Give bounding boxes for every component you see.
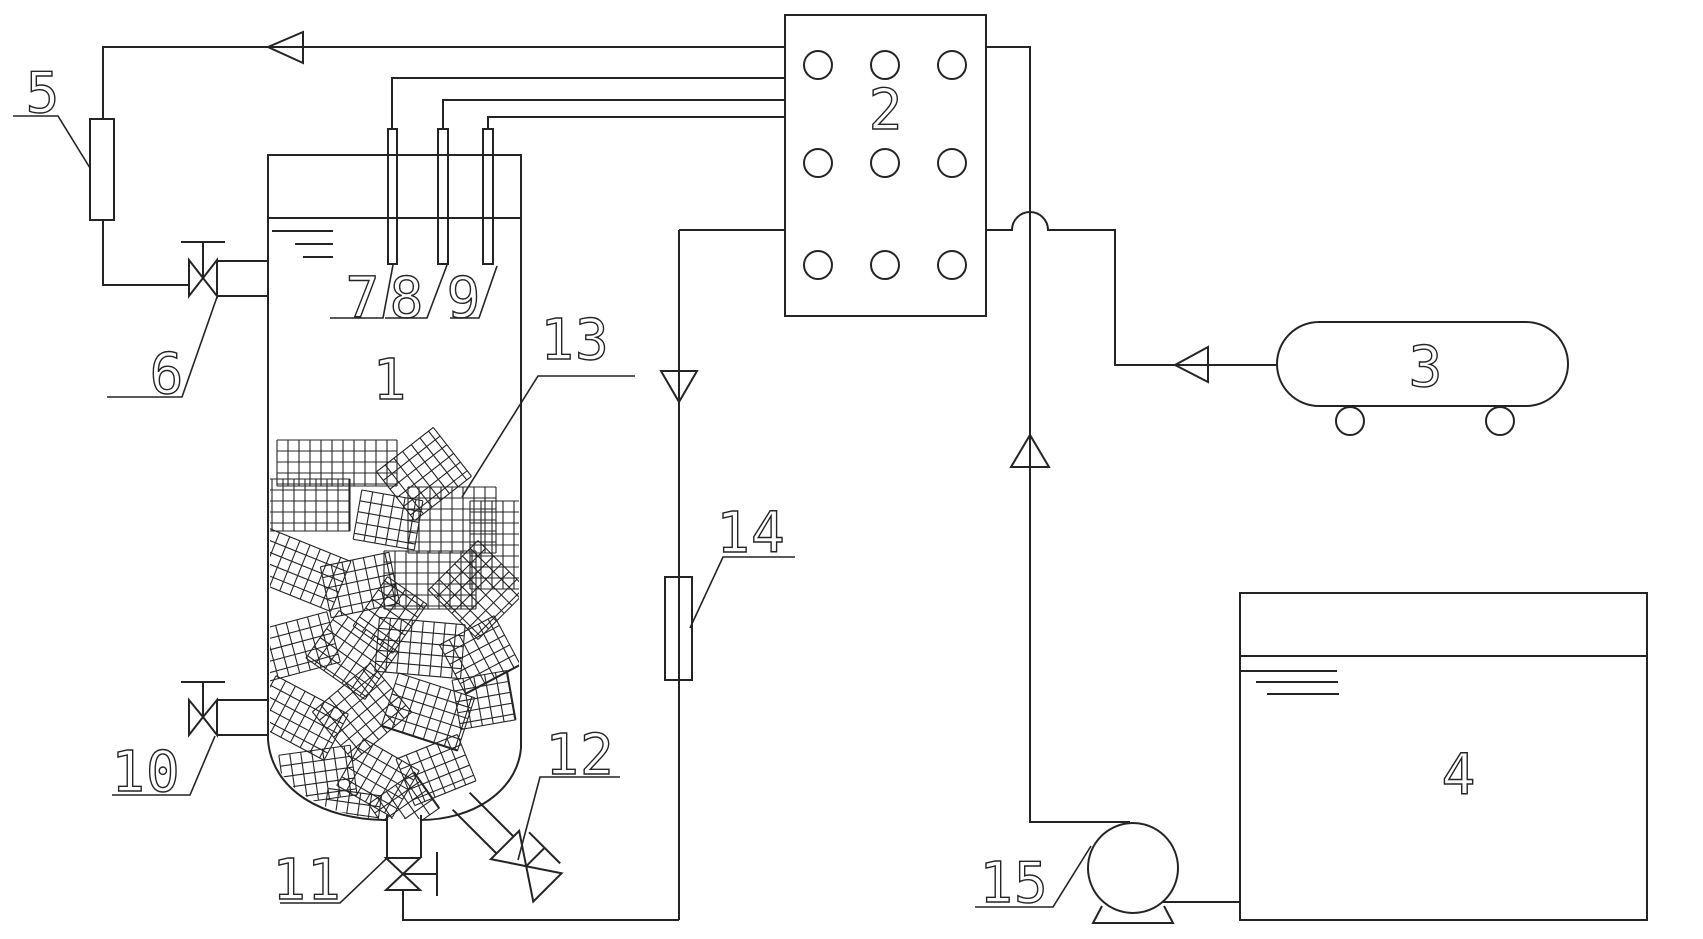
label-reservoir-tank: 4: [1442, 743, 1477, 808]
packing-tile: [249, 528, 351, 611]
label-control-box: 2: [869, 78, 904, 143]
sampling-valve: [181, 682, 268, 735]
probe-c-tube: [483, 129, 493, 264]
pipe-overhead-gas-line: [103, 47, 785, 285]
packing-media: [244, 427, 528, 840]
label-inlet-valve: 6: [150, 342, 185, 407]
inlet-valve: [181, 242, 268, 296]
packing-tile: [375, 617, 465, 678]
packing-tile: [250, 479, 350, 531]
packing-tile-grid: [249, 528, 351, 611]
label-sampling-valve: 10: [111, 740, 180, 805]
patent-figure: 1 2 3 4 5 6 7 8 9 10 11 12 13 14 15: [0, 0, 1703, 939]
probe-assembly: [388, 78, 785, 264]
packing-tile: [408, 487, 496, 553]
label-pump: 15: [979, 851, 1048, 916]
packing-tile-grid: [279, 745, 357, 805]
angle-drain-valve: [447, 783, 566, 902]
label-drain-valve: 11: [272, 848, 341, 913]
gas-flowmeter-body: [90, 119, 114, 220]
schematic-svg: 1 2 3 4 5 6 7 8 9 10 11 12 13 14 15: [0, 0, 1703, 939]
leader-12: [518, 777, 620, 860]
pump: [1088, 823, 1240, 923]
figure-labels: 1 2 3 4 5 6 7 8 9 10 11 12 13 14 15: [26, 61, 1477, 916]
packing-tile-grid: [250, 479, 350, 531]
control-box: [785, 15, 986, 316]
label-gas-cylinder: 3: [1409, 335, 1444, 400]
drain-neck: [387, 815, 421, 858]
liquid-level-icon: [272, 231, 333, 257]
label-angle-valve: 12: [545, 723, 614, 788]
probe-b-tube: [438, 129, 448, 264]
leader-14: [690, 557, 795, 628]
wheel-icon: [1336, 407, 1364, 435]
packing-tile-grid: [408, 487, 496, 553]
sampling-nozzle: [217, 700, 268, 735]
label-packing-media: 13: [540, 308, 609, 373]
label-gas-flowmeter: 5: [26, 61, 61, 126]
label-rotameter: 14: [716, 501, 785, 566]
probe-a-tube: [388, 129, 397, 264]
label-reactor-vessel: 1: [373, 348, 408, 413]
packing-tile: [396, 734, 476, 805]
packing-tile-grid: [375, 617, 465, 678]
packing-tile-grid: [306, 611, 398, 700]
packing-tile-grid: [396, 734, 476, 805]
packing-tile: [306, 611, 398, 700]
packing-tile-grid: [452, 671, 516, 730]
packing-tile: [279, 745, 357, 805]
pump-base: [1093, 906, 1173, 923]
packing-tile: [452, 671, 516, 730]
wheel-icon: [1486, 407, 1514, 435]
liquid-level-icon: [1240, 671, 1339, 694]
recirculation-line: [661, 230, 785, 920]
probe-signal-wires: [392, 78, 785, 129]
label-probe-b: 8: [390, 266, 425, 331]
pipe-box-to-pump: [986, 47, 1130, 822]
leader-13: [462, 376, 635, 497]
label-probe-c: 9: [447, 266, 482, 331]
label-probe-a: 7: [346, 266, 381, 331]
inlet-nozzle: [217, 261, 268, 296]
